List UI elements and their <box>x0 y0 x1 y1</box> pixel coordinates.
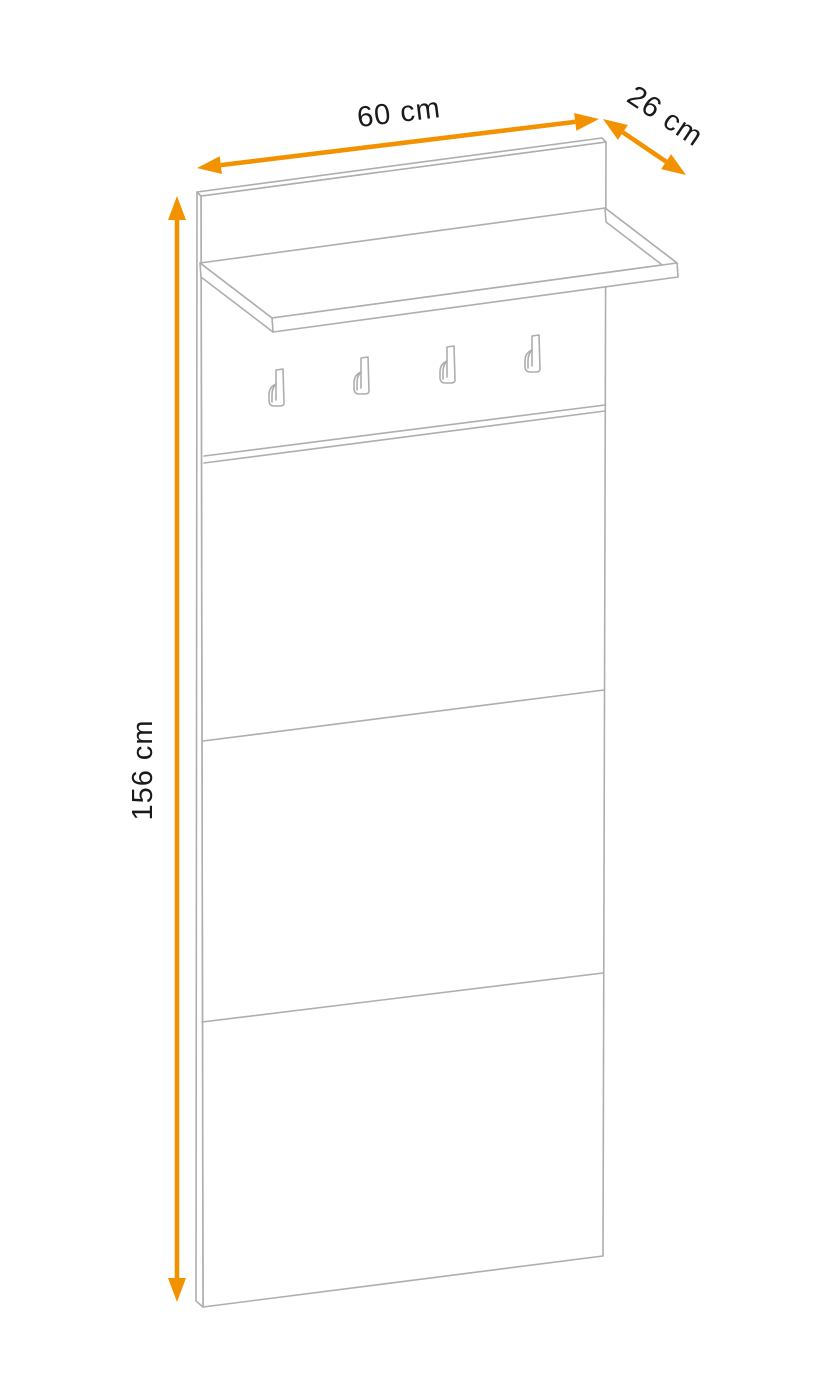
arrow-head-top-icon <box>168 196 186 220</box>
arrow-head-upper-icon <box>603 119 628 140</box>
height-dimension-label: 156 cm <box>127 719 159 820</box>
diagram-canvas: 60 cm 26 cm 156 cm <box>0 0 820 1400</box>
arrow-head-lower-icon <box>661 154 686 175</box>
arrow-head-left-icon <box>197 156 222 174</box>
height-dimension-arrow <box>168 196 186 1302</box>
panel-left-edge <box>196 192 203 1307</box>
arrow-head-bottom-icon <box>168 1278 186 1302</box>
width-dimension-label: 60 cm <box>355 92 442 134</box>
furniture-dimension-diagram: 60 cm 26 cm 156 cm <box>0 0 820 1400</box>
arrow-head-right-icon <box>574 113 599 131</box>
coat-rack-drawing <box>196 138 678 1307</box>
